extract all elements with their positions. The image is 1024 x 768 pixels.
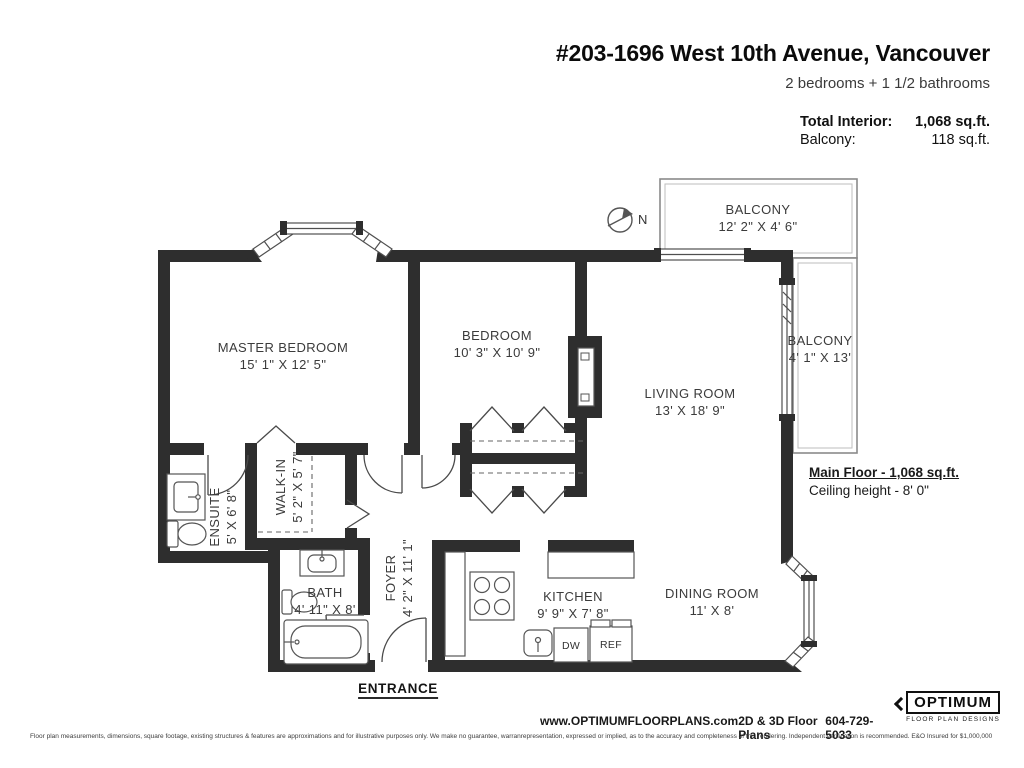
north-label: N: [638, 212, 647, 227]
fireplace: [568, 336, 602, 418]
refrigerator-label: REF: [600, 639, 622, 651]
room-label-foyer: FOYER4' 2" X 11' 1": [383, 539, 417, 617]
bath-sink: [300, 550, 344, 576]
north-arrow-icon: [608, 208, 633, 232]
floor-plan-page: #203-1696 West 10th Avenue, Vancouver 2 …: [0, 0, 1024, 768]
ceiling-height: Ceiling height - 8' 0": [809, 483, 959, 498]
floor-plan-canvas: [0, 0, 1024, 768]
optimum-logo: OPTIMUM FLOOR PLAN DESIGNS: [906, 691, 1000, 723]
entrance-label: ENTRANCE: [358, 681, 438, 699]
ensuite-toilet: [167, 521, 206, 547]
logo-caption: FLOOR PLAN DESIGNS: [906, 716, 1000, 723]
room-label-ensuite: ENSUITE5' X 6' 8": [207, 487, 241, 546]
dishwasher-label: DW: [562, 640, 580, 652]
room-label-bath: BATH4' 11" X 8': [294, 585, 355, 619]
room-label-dining-room: DINING ROOM11' X 8': [665, 586, 759, 620]
logo-text: OPTIMUM: [914, 694, 992, 711]
room-label-master-bedroom: MASTER BEDROOM15' 1" X 12' 5": [218, 340, 349, 374]
stove: [470, 572, 514, 620]
room-label-living-room: LIVING ROOM13' X 18' 9": [644, 386, 735, 420]
main-floor-area: Main Floor - 1,068 sq.ft.: [809, 465, 959, 480]
main-floor-note: Main Floor - 1,068 sq.ft. Ceiling height…: [809, 465, 959, 498]
room-label-kitchen: KITCHEN9' 9" X 7' 8": [537, 589, 608, 623]
room-label-walk-in: WALK-IN5' 2" X 5' 7": [273, 451, 307, 522]
ensuite-sink: [167, 474, 205, 520]
kitchen-counter: [548, 552, 634, 578]
room-label-balcony-right: BALCONY4' 1" X 13': [788, 333, 853, 367]
pantry-cabinet: [445, 552, 465, 656]
room-label-bedroom: BEDROOM10' 3" X 10' 9": [454, 328, 541, 362]
room-label-balcony-top: BALCONY12' 2" X 4' 6": [718, 202, 797, 236]
bathtub: [284, 620, 368, 664]
kitchen-sink: [524, 630, 552, 656]
disclaimer-text: Floor plan measurements, dimensions, squ…: [30, 733, 1005, 740]
